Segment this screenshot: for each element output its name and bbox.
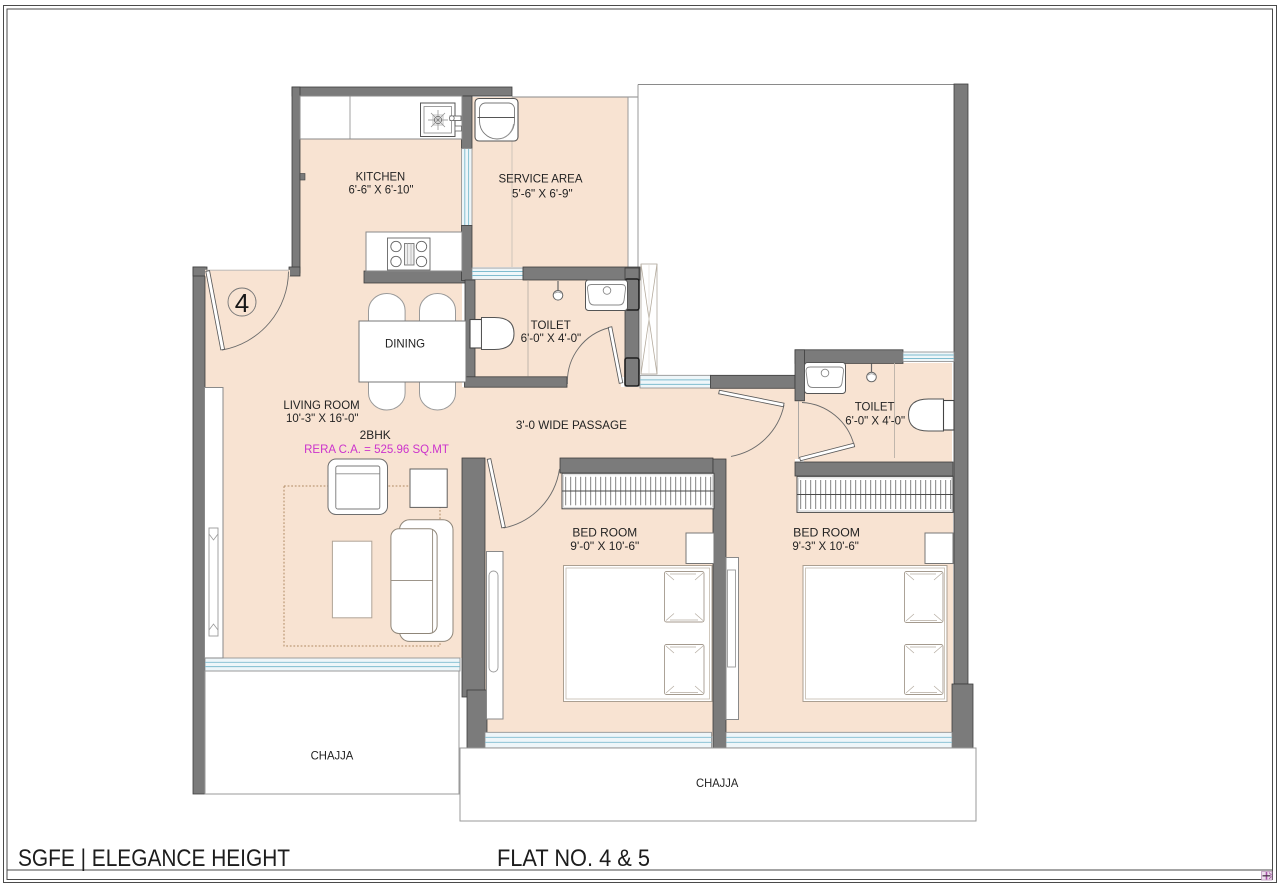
svg-text:TOILET: TOILET: [531, 318, 572, 332]
svg-text:BED ROOM: BED ROOM: [572, 526, 637, 540]
svg-text:DINING: DINING: [385, 337, 425, 351]
svg-text:3'-0 WIDE PASSAGE: 3'-0 WIDE PASSAGE: [516, 418, 627, 432]
svg-text:4: 4: [235, 288, 249, 318]
svg-text:TOILET: TOILET: [855, 399, 895, 413]
svg-text:LIVING ROOM: LIVING ROOM: [283, 398, 359, 412]
svg-text:SGFE | ELEGANCE HEIGHT: SGFE | ELEGANCE HEIGHT: [18, 845, 290, 872]
svg-text:SERVICE AREA: SERVICE AREA: [499, 172, 583, 186]
svg-text:6'-0" X 4'-0": 6'-0" X 4'-0": [521, 331, 582, 345]
svg-text:9'-0" X 10'-6": 9'-0" X 10'-6": [570, 539, 639, 553]
svg-text:CHAJJA: CHAJJA: [696, 776, 738, 790]
svg-text:6'-0" X 4'-0": 6'-0" X 4'-0": [845, 413, 905, 427]
svg-text:6'-6" X 6'-10": 6'-6" X 6'-10": [349, 182, 414, 196]
svg-text:CHAJJA: CHAJJA: [311, 748, 354, 762]
svg-text:9'-3" X 10'-6": 9'-3" X 10'-6": [792, 539, 859, 553]
svg-text:FLAT NO. 4 & 5: FLAT NO. 4 & 5: [497, 845, 650, 872]
svg-text:2BHK: 2BHK: [360, 428, 391, 442]
svg-text:10'-3" X 16'-0": 10'-3" X 16'-0": [286, 411, 358, 425]
svg-text:KITCHEN: KITCHEN: [356, 169, 406, 183]
svg-text:5'-6" X 6'-9": 5'-6" X 6'-9": [512, 187, 573, 201]
svg-text:RERA C.A. = 525.96 SQ.MT: RERA C.A. = 525.96 SQ.MT: [304, 442, 449, 456]
svg-text:BED ROOM: BED ROOM: [793, 526, 860, 540]
